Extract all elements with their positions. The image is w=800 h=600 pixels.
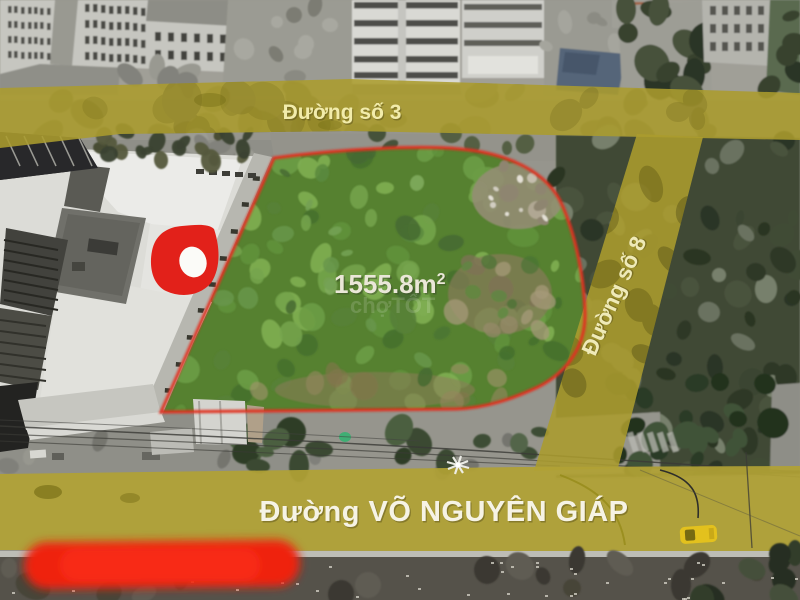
svg-text:Đường số 3: Đường số 3 bbox=[283, 101, 402, 124]
svg-text:1555.8m2: 1555.8m2 bbox=[334, 269, 446, 299]
svg-text:Đường VÕ NGUYÊN GIÁP: Đường VÕ NGUYÊN GIÁP bbox=[259, 494, 628, 528]
